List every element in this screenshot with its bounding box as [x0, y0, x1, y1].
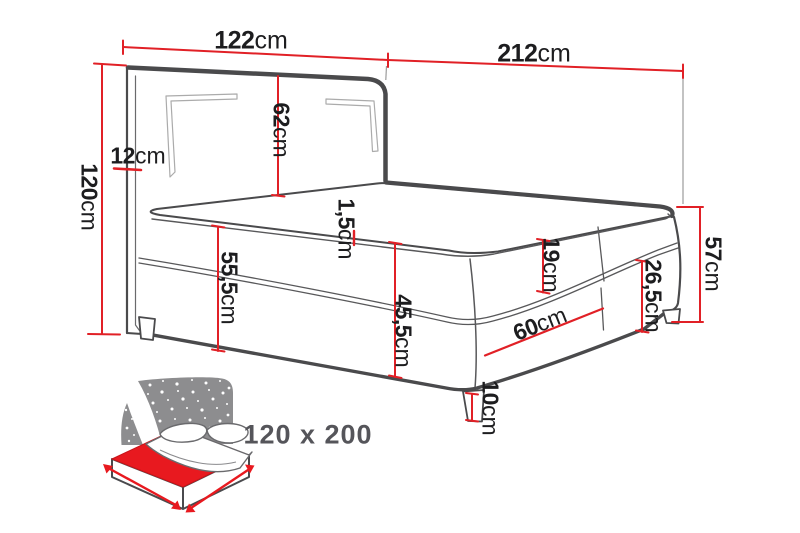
led-groove-left — [166, 94, 237, 177]
mattress — [151, 183, 674, 257]
bed-size-icon — [103, 377, 255, 512]
dim-label-piping-height: 1,5cm — [335, 198, 358, 259]
leg-front-left — [139, 317, 155, 340]
dim-label-headboard-depth: 12cm — [110, 145, 165, 168]
dim-label-base-height: 26,5cm — [642, 259, 665, 332]
dimension-extension-lines — [386, 66, 683, 204]
mattress-size-caption: 120 x 200 — [243, 420, 372, 451]
dim-label-leg-height: 10cm — [479, 380, 502, 435]
led-groove-right — [326, 99, 378, 152]
dim-label-body-height: 45,5cm — [392, 294, 415, 367]
dim-label-mattress-height: 19cm — [540, 237, 563, 292]
bed-dimension-diagram: 122cm 212cm 120cm 12cm 62cm 55,5cm 1,5cm… — [0, 0, 800, 533]
dim-label-headboard-width: 122cm — [214, 29, 288, 54]
dim-label-bed-length: 212cm — [497, 42, 571, 67]
dim-label-foot-corner-height: 57cm — [702, 236, 725, 291]
dim-label-headboard-height: 120cm — [78, 163, 101, 231]
dim-label-floor-to-mattress-top: 55,5cm — [218, 251, 241, 324]
dim-tick-12 — [114, 169, 141, 171]
dim-label-headboard-above-mattress: 62cm — [270, 102, 293, 157]
bed-drawing — [0, 0, 800, 533]
